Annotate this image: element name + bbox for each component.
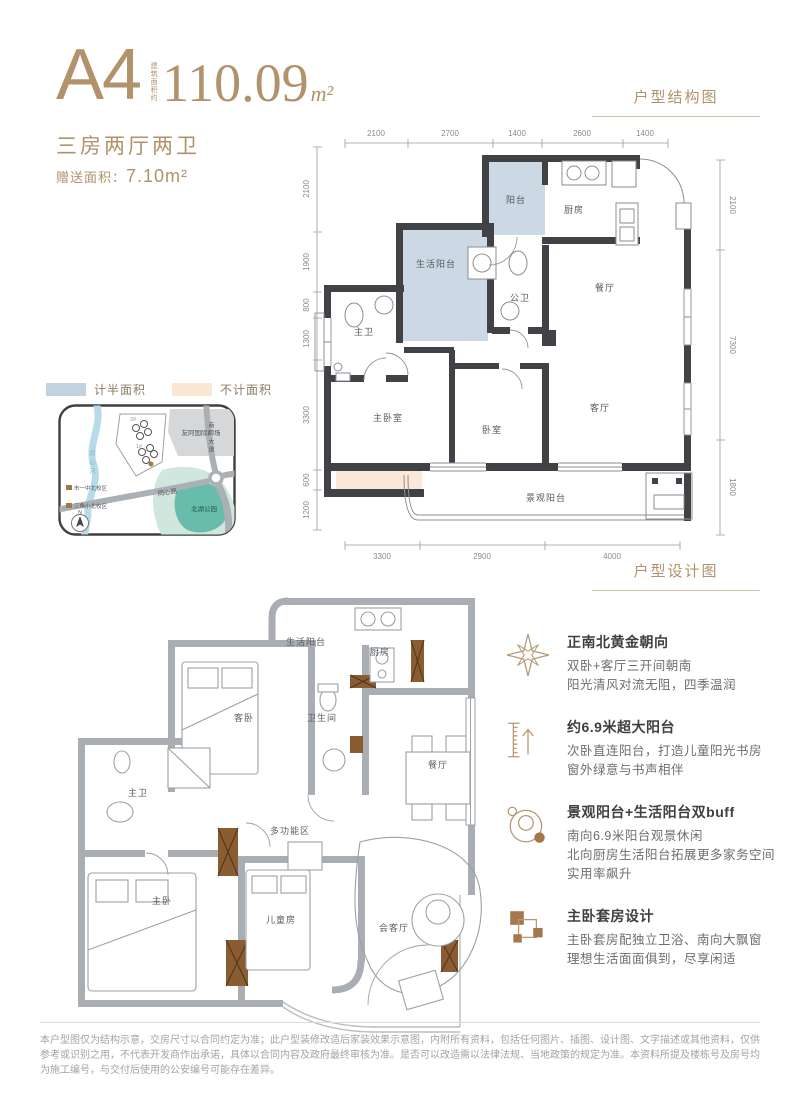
feature-double-balcony: 景观阳台+生活阳台双buff 南向6.9米阳台观景休闲 北向厨房生活阳台拓展更多… xyxy=(505,802,785,884)
svg-text:厨房: 厨房 xyxy=(564,204,584,215)
feature-title: 约6.9米超大阳台 xyxy=(567,717,762,737)
legend-half-area: 计半面积 xyxy=(46,381,146,398)
ruler-icon xyxy=(505,717,551,763)
svg-text:主卫: 主卫 xyxy=(354,326,374,337)
svg-text:2100: 2100 xyxy=(302,180,311,198)
structure-floorplan: 2100 2700 1400 2600 1400 2100 1900 800 1… xyxy=(280,115,780,575)
unit-label: A4 xyxy=(56,40,140,110)
feature-line: 双卧+客厅三开间朝南 xyxy=(567,657,736,676)
circles-icon xyxy=(505,802,551,848)
kitchen-fixtures xyxy=(562,161,638,245)
map-road-vertical-label: 南岭大道 xyxy=(207,421,214,454)
svg-text:2100: 2100 xyxy=(728,196,737,214)
svg-text:1200: 1200 xyxy=(302,501,311,519)
feature-master-suite: 主卧套房设计 主卧套房配独立卫浴、南向大飘窗 理想生活面面俱到，尽享闲适 xyxy=(505,906,785,969)
map-roundabout xyxy=(210,472,222,484)
svg-text:卫生间: 卫生间 xyxy=(307,712,337,723)
svg-text:2900: 2900 xyxy=(473,552,491,561)
svg-text:儿童房: 儿童房 xyxy=(266,914,296,925)
excluded-area-label: 不计面积 xyxy=(220,381,272,398)
area-legend: 计半面积 不计面积 xyxy=(46,381,272,398)
svg-text:1400: 1400 xyxy=(636,129,654,138)
svg-text:1800: 1800 xyxy=(728,478,737,496)
squares-icon xyxy=(505,906,551,952)
map-school1-label: 市一中北校区 xyxy=(74,484,108,492)
feature-list: 正南北黄金朝向 双卧+客厅三开间朝南 阳光清风对流无阻，四季温润 约6.9米超大… xyxy=(505,632,785,991)
feature-line: 主卧套房配独立卫浴、南向大飘窗 xyxy=(567,931,762,950)
svg-text:主卫: 主卫 xyxy=(128,787,148,798)
feature-line: 阳光清风对流无阻，四季温润 xyxy=(567,676,736,695)
design-floorplan: 生活阳台 厨房 客卧 卫生间 主卫 餐厅 多功能区 主卧 儿童房 会客厅 xyxy=(50,590,500,1035)
feature-title: 景观阳台+生活阳台双buff xyxy=(567,802,775,822)
feature-orientation: 正南北黄金朝向 双卧+客厅三开间朝南 阳光清风对流无阻，四季温润 xyxy=(505,632,785,695)
svg-text:7300: 7300 xyxy=(728,336,737,354)
map-school2-label: 三角小北校区 xyxy=(74,502,108,510)
svg-text:生活阳台: 生活阳台 xyxy=(416,258,456,269)
area-unit: m² xyxy=(311,81,333,110)
map-plot-b-label: 1# xyxy=(136,444,143,450)
svg-text:主卧室: 主卧室 xyxy=(373,412,403,423)
legend-excluded-area: 不计面积 xyxy=(172,381,272,398)
svg-text:1300: 1300 xyxy=(302,330,311,348)
svg-text:客厅: 客厅 xyxy=(590,402,610,413)
svg-text:1900: 1900 xyxy=(302,253,311,271)
feature-title: 正南北黄金朝向 xyxy=(567,632,736,652)
excluded-area-swatch xyxy=(172,383,212,396)
svg-text:1400: 1400 xyxy=(508,129,526,138)
bonus-area-label: 赠送面积： xyxy=(56,170,126,185)
half-area-swatch xyxy=(46,383,86,396)
svg-text:4000: 4000 xyxy=(603,552,621,561)
map-mall-label: 友阿国际广场 xyxy=(182,428,222,437)
svg-text:2100: 2100 xyxy=(367,129,385,138)
svg-text:客卧: 客卧 xyxy=(234,712,254,723)
area-note-vertical: 建筑面积约 xyxy=(148,62,158,102)
service-balcony-fixtures xyxy=(468,247,496,279)
disclaimer-text: 本户型图仅为结构示意，交房尺寸以合同约定为准；此户型装修改造后家装效果示意图，内… xyxy=(40,1022,760,1078)
feature-line: 次卧直连阳台，打造儿童阳光书房 xyxy=(567,742,762,761)
map-river-label: 同心河 xyxy=(88,450,95,477)
svg-text:N: N xyxy=(78,510,82,516)
area-value: 110.09 xyxy=(162,56,309,110)
svg-text:阳台: 阳台 xyxy=(506,194,526,205)
map-plot-a-label: 2# xyxy=(130,417,137,423)
svg-text:3300: 3300 xyxy=(302,406,311,424)
svg-text:2600: 2600 xyxy=(573,129,591,138)
location-map: 2# 1# 同心河 南岭大道 同心路 友阿国际广场 北湖公园 市一中北校区 三角… xyxy=(58,404,236,536)
svg-text:会客厅: 会客厅 xyxy=(379,922,409,933)
svg-text:公卫: 公卫 xyxy=(510,293,530,303)
sunburst-icon xyxy=(505,632,551,678)
feature-line: 理想生活面面俱到，尽享闲适 xyxy=(567,950,762,969)
svg-text:3300: 3300 xyxy=(373,552,391,561)
svg-text:主卧: 主卧 xyxy=(152,895,172,906)
bonus-area: 赠送面积：7.10m² xyxy=(56,166,188,187)
unit-title-block: A4 建筑面积约 110.09 m² xyxy=(56,40,333,110)
svg-text:800: 800 xyxy=(302,298,311,312)
layout-type: 三房两厅两卫 xyxy=(56,130,200,160)
bonus-area-value: 7.10m² xyxy=(126,166,188,186)
svg-text:餐厅: 餐厅 xyxy=(595,282,615,293)
svg-text:餐厅: 餐厅 xyxy=(428,759,448,770)
feature-title: 主卧套房设计 xyxy=(567,906,762,926)
svg-text:生活阳台: 生活阳台 xyxy=(286,636,326,647)
svg-text:600: 600 xyxy=(302,473,311,487)
svg-text:卧室: 卧室 xyxy=(482,424,502,435)
feature-line: 实用率飙升 xyxy=(567,865,775,884)
feature-balcony-size: 约6.9米超大阳台 次卧直连阳台，打造儿童阳光书房 窗外绿意与书声相伴 xyxy=(505,717,785,780)
svg-text:多功能区: 多功能区 xyxy=(270,825,310,836)
svg-text:厨房: 厨房 xyxy=(370,646,390,657)
svg-text:2700: 2700 xyxy=(441,129,459,138)
map-road-right xyxy=(222,473,236,476)
feature-line: 窗外绿意与书声相伴 xyxy=(567,761,762,780)
feature-line: 北向厨房生活阳台拓展更多家务空间 xyxy=(567,846,775,865)
feature-line: 南向6.9米阳台观景休闲 xyxy=(567,827,775,846)
floorplan-page: A4 建筑面积约 110.09 m² 三房两厅两卫 赠送面积：7.10m² 户型… xyxy=(0,0,800,1107)
section-title-structure: 户型结构图 xyxy=(592,86,760,117)
svg-text:景观阳台: 景观阳台 xyxy=(526,492,566,503)
map-park-label: 北湖公园 xyxy=(191,504,217,513)
entry-door xyxy=(640,159,691,229)
half-area-label: 计半面积 xyxy=(94,381,146,398)
